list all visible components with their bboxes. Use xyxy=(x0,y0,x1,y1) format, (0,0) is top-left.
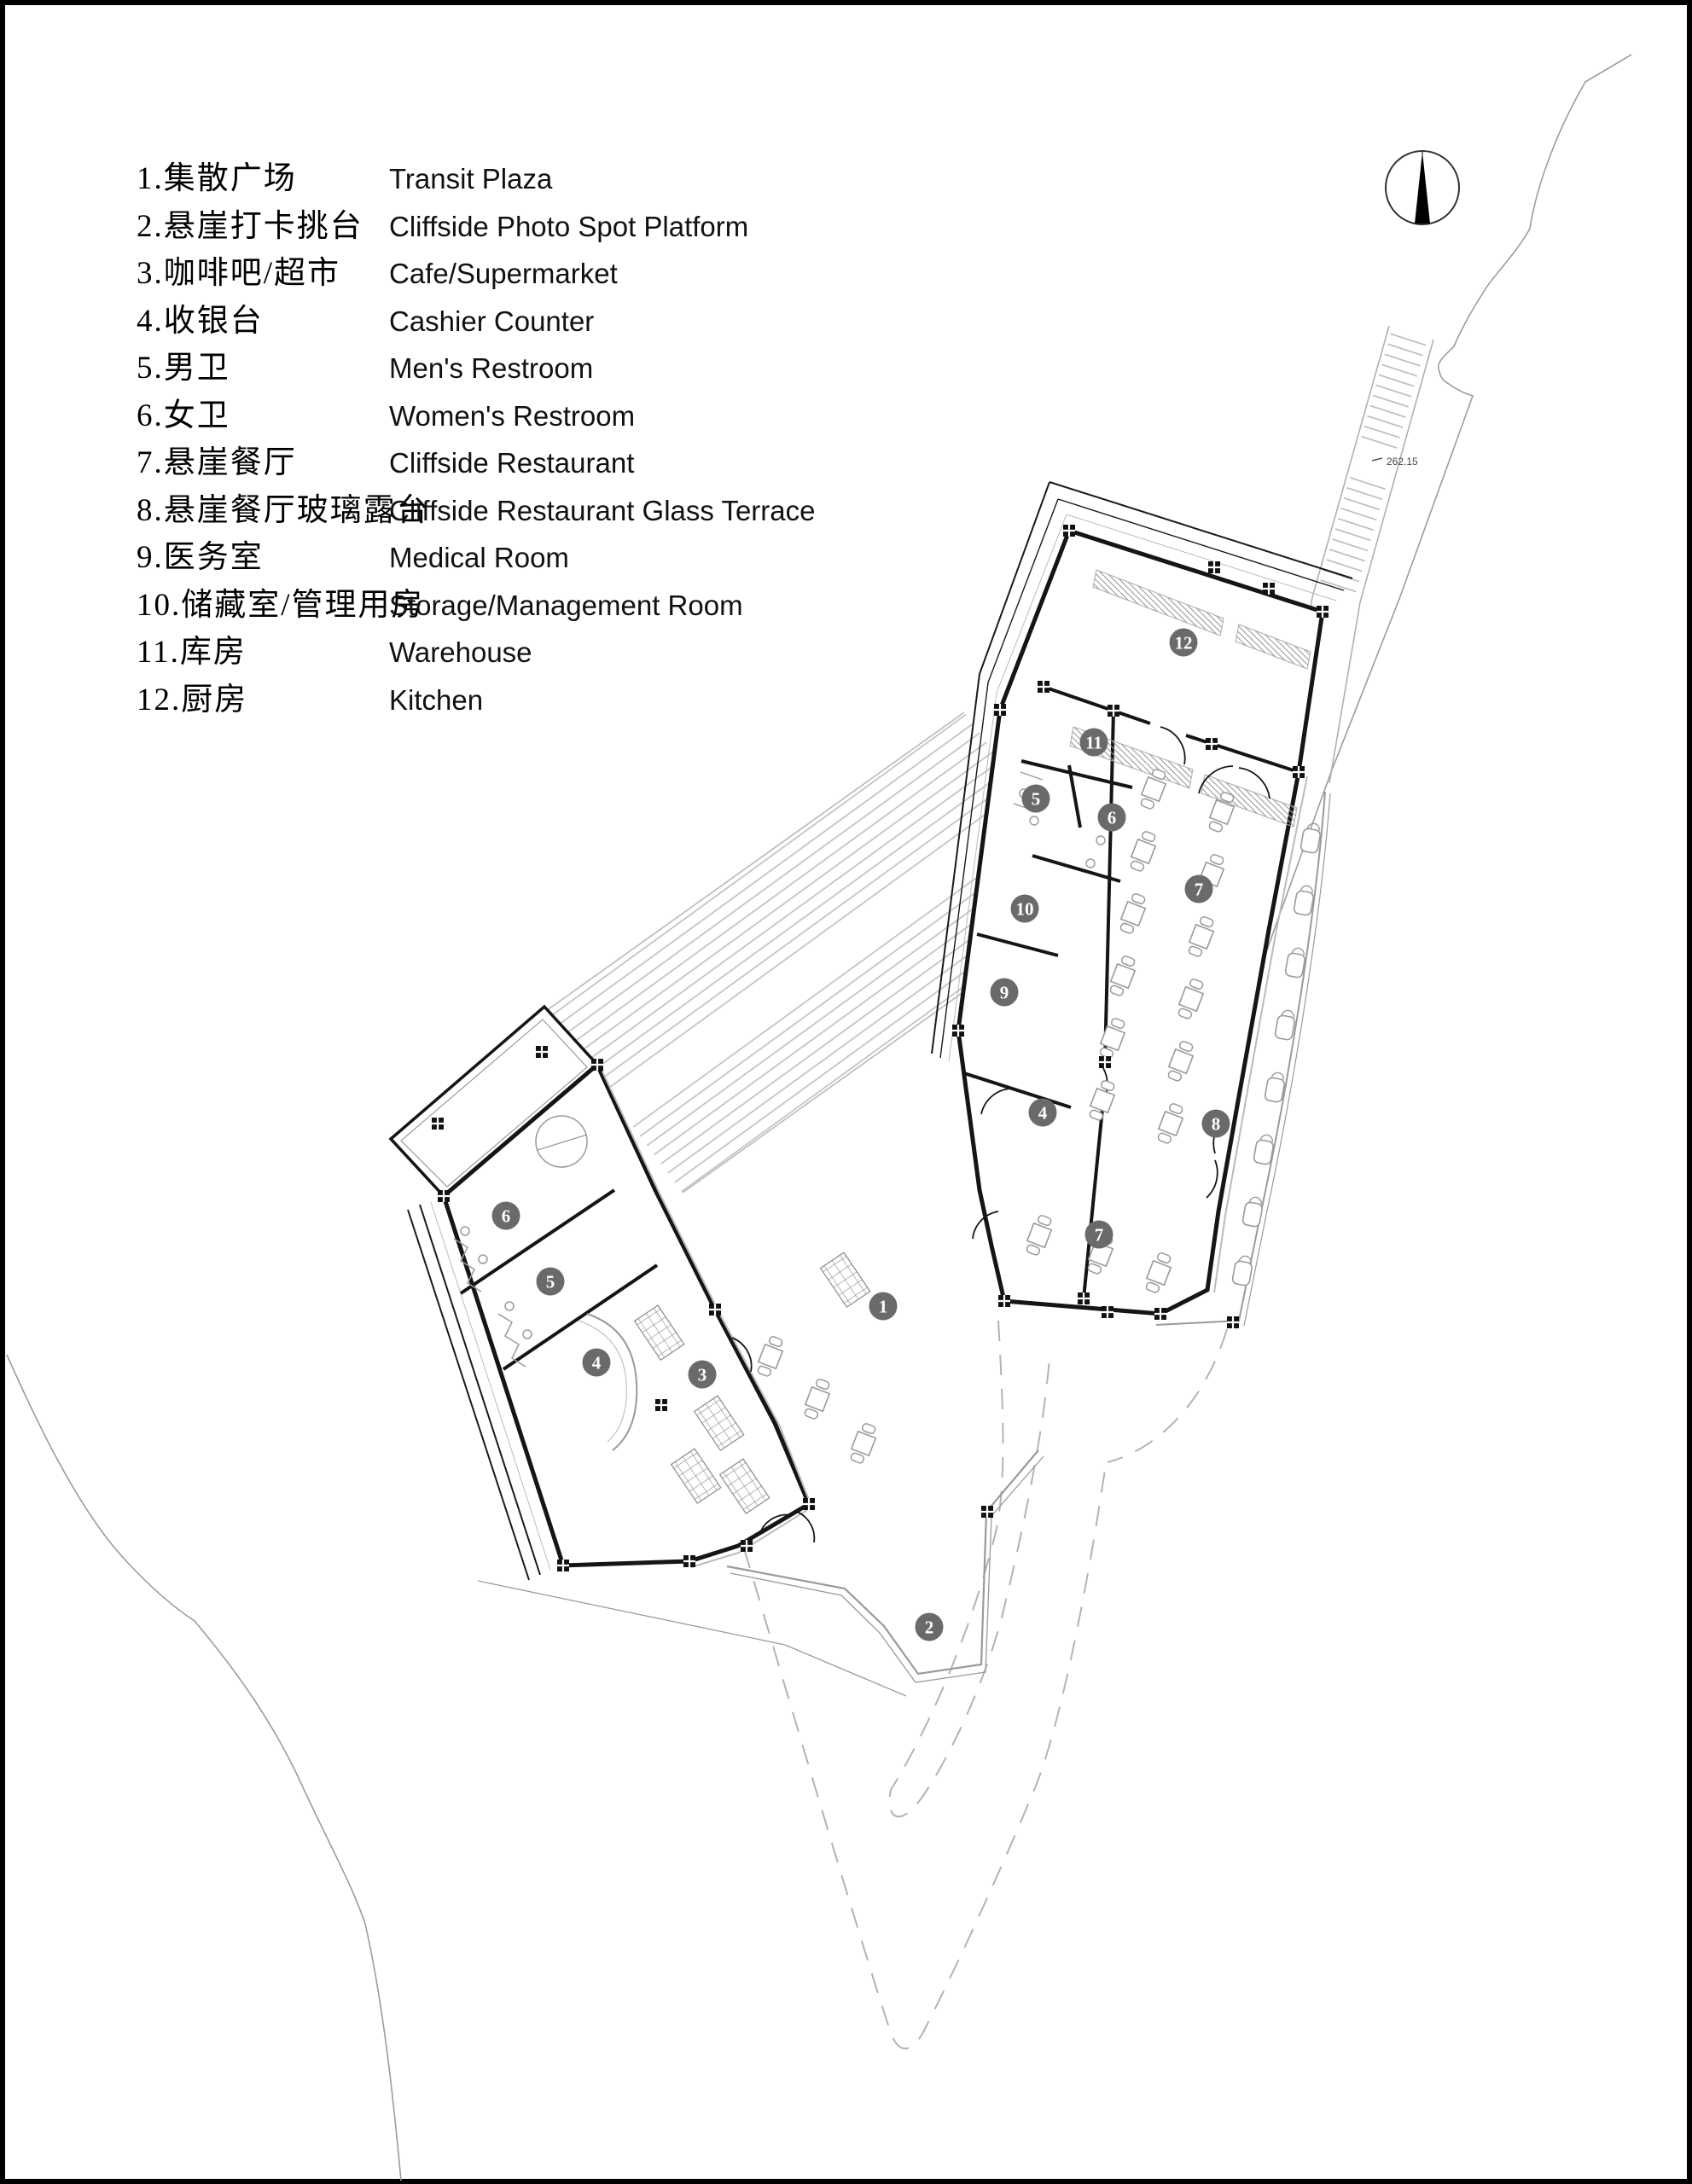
svg-text:11: 11 xyxy=(1085,733,1102,753)
svg-text:4: 4 xyxy=(1038,1103,1048,1124)
room-marker-12: 12 xyxy=(1170,629,1198,657)
room-marker-1: 1 xyxy=(869,1292,898,1321)
svg-text:8: 8 xyxy=(1212,1114,1221,1135)
svg-text:6: 6 xyxy=(502,1206,511,1227)
svg-text:12: 12 xyxy=(1175,633,1193,653)
room-marker-4: 4 xyxy=(583,1349,611,1377)
room-marker-3: 3 xyxy=(689,1361,717,1389)
svg-text:3: 3 xyxy=(698,1365,707,1385)
svg-text:10: 10 xyxy=(1016,899,1034,920)
svg-text:7: 7 xyxy=(1195,880,1204,900)
room-marker-7: 7 xyxy=(1085,1221,1113,1249)
svg-text:5: 5 xyxy=(546,1272,555,1292)
svg-text:4: 4 xyxy=(592,1353,602,1374)
svg-text:9: 9 xyxy=(1000,983,1009,1003)
svg-text:1: 1 xyxy=(879,1297,888,1317)
room-marker-6: 6 xyxy=(1098,804,1126,832)
room-marker-4: 4 xyxy=(1029,1099,1057,1127)
room-marker-6: 6 xyxy=(492,1202,520,1230)
room-marker-2: 2 xyxy=(916,1613,944,1641)
room-marker-10: 10 xyxy=(1011,895,1039,923)
elevation-label: 262.15 xyxy=(1387,456,1418,468)
room-marker-5: 5 xyxy=(537,1268,565,1296)
room-marker-8: 8 xyxy=(1202,1110,1230,1138)
room-marker-9: 9 xyxy=(991,979,1019,1007)
room-marker-5: 5 xyxy=(1022,785,1050,813)
north-arrow-icon xyxy=(1386,151,1459,224)
svg-text:7: 7 xyxy=(1095,1225,1104,1246)
room-marker-11: 11 xyxy=(1080,729,1108,757)
floor-plan-page: 1.集散广场Transit Plaza2.悬崖打卡挑台Cliffside Pho… xyxy=(0,0,1692,2184)
svg-text:5: 5 xyxy=(1032,789,1041,810)
svg-text:2: 2 xyxy=(925,1618,934,1638)
room-marker-7: 7 xyxy=(1185,875,1213,903)
site-plan-drawing: 262.15 xyxy=(0,0,1692,2184)
svg-text:6: 6 xyxy=(1108,808,1117,828)
site-boundary-dashed xyxy=(744,1321,1227,2048)
